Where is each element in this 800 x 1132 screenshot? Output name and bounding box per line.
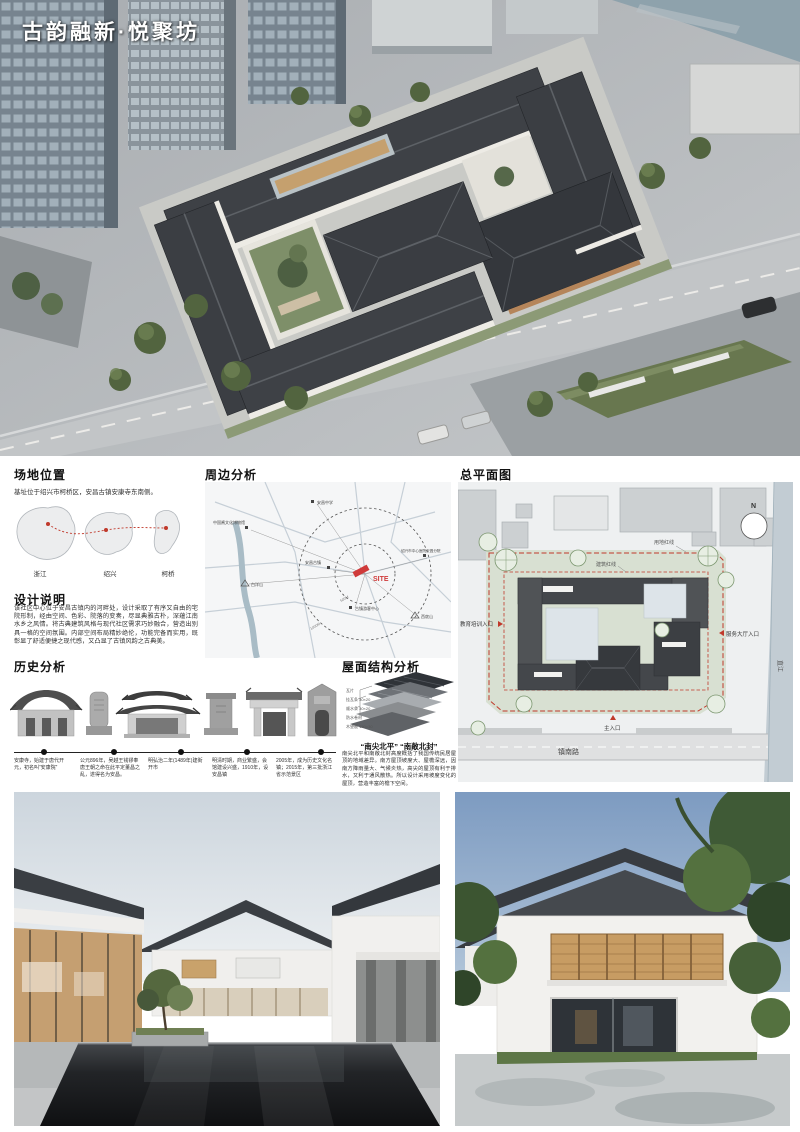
map-shaoxing (85, 512, 132, 554)
master-plan-heading: 总平面图 (460, 466, 512, 483)
hero-aerial-render (0, 0, 800, 456)
timeline-entry-3: 明弘治二年(1489年)建街开市 (148, 758, 206, 772)
timeline-dot-5 (318, 749, 324, 755)
timeline-dot-3 (178, 749, 184, 755)
map-label-shaoxing: 绍兴 (104, 569, 118, 578)
page-title: 古韵融新·悦聚坊 (22, 16, 200, 46)
roof-layer-4: 防水卷材 (346, 714, 362, 720)
history-photo-temple (10, 690, 82, 736)
poi-mountain-west: 白洋山 (251, 581, 263, 587)
site-location-caption: 基址位于绍兴市柯桥区，安昌古镇安康寺东南侧。 (14, 486, 200, 496)
plan-site-redline-label: 用地红线 (654, 539, 674, 546)
plan-river-label: 直江 (776, 660, 784, 672)
roof-body: 南尖北平和南敞北封高度概括了我国传统民居屋顶的地域差异。南方屋顶坡度大、屋檐深远… (342, 751, 456, 788)
map-label-zhejiang: 浙江 (34, 569, 48, 578)
history-photo-strip (10, 670, 338, 742)
timeline-entry-4: 明清时期，商业繁盛，会馆建设兴盛，1910年，设安昌镇 (212, 758, 270, 778)
plan-entrance-edu-label: 教育培训入口 (460, 620, 493, 628)
render-facade (455, 792, 790, 1126)
design-notes-body: 该社区中心位于安昌古镇内的河畔处，设计采取了有序又自由的宅院形制，经由空间、色彩… (14, 605, 198, 646)
surrounding-heading: 周边分析 (205, 466, 257, 483)
timeline-dot-4 (244, 749, 250, 755)
timeline-dot-2 (111, 749, 117, 755)
roof-exploded-diagram: 瓦片 挂瓦条 30×20 顺水条 30×20 防水卷材 木望板 150×30 (344, 670, 458, 740)
timeline-entry-1: 安康寺，始建于唐代开元，初名叫“安康院” (14, 758, 72, 772)
poi-museum: 中国酱文化博物馆 (213, 519, 245, 525)
map-zhejiang (17, 507, 75, 560)
poi-school: 安昌中学 (317, 499, 333, 505)
history-photo-stele (86, 692, 112, 735)
map-keqiao (154, 510, 179, 553)
plan-entrance-service-label: 服务大厅入口 (726, 630, 759, 638)
timeline-dot-1 (41, 749, 47, 755)
poi-visitor-center: 古镇游客中心 (355, 605, 379, 611)
plan-entrance-main-label: 主入口 (604, 724, 621, 732)
history-timeline: 安康寺，始建于唐代开元，初名叫“安康院” 公元896年，吴越王钱镠奉唐王朝之命在… (14, 746, 336, 786)
roof-layer-5: 木望板 150×30 (346, 723, 373, 729)
site-label: SITE (373, 576, 389, 583)
history-photo-hall (116, 691, 200, 738)
plan-building-redline-label: 建筑红线 (596, 561, 616, 568)
poi-mountain-east: 西扆山 (421, 613, 433, 619)
poi-hospital: 绍兴市中心医院安昌分院 (401, 548, 441, 553)
timeline-axis (14, 752, 336, 753)
poi-oldtown: 安昌古镇 (305, 559, 321, 565)
map-label-keqiao: 柯桥 (162, 569, 176, 578)
facade-ground (455, 1052, 790, 1126)
province-maps: 浙江 绍兴 柯桥 (10, 498, 198, 582)
site-location-heading: 场地位置 (14, 466, 66, 483)
roof-layer-2: 挂瓦条 30×20 (346, 696, 371, 702)
history-photo-monument (204, 693, 238, 735)
timeline-entry-2: 公元896年，吴越王钱镠奉唐王朝之命在此平定董昌之乱，遂得名为安昌。 (80, 758, 142, 778)
history-photo-archway (246, 688, 302, 736)
timeline-entry-5: 2005年，成为历史文化名镇；2015年，第三批浙江省示范景区 (276, 758, 336, 778)
master-plan-drawing: 直江 镇南路 (458, 482, 793, 782)
presentation-board: 古韵融新·悦聚坊 场地位置 基址位于绍兴市柯桥区，安昌古镇安康寺东南侧。 浙江 … (0, 0, 800, 1132)
roof-layer-1: 瓦片 (346, 687, 354, 693)
north-label: N (751, 503, 756, 510)
pool-water (40, 1044, 440, 1126)
plan-road-label: 镇南路 (558, 747, 579, 756)
render-courtyard-pool (14, 792, 440, 1126)
history-photo-gate (308, 684, 336, 736)
roof-layer-3: 顺水条 30×20 (346, 705, 371, 711)
surrounding-map: 500M 1000M SITE 安昌中学 中国酱文化博物馆 绍兴市中心医院安昌分… (205, 482, 451, 658)
